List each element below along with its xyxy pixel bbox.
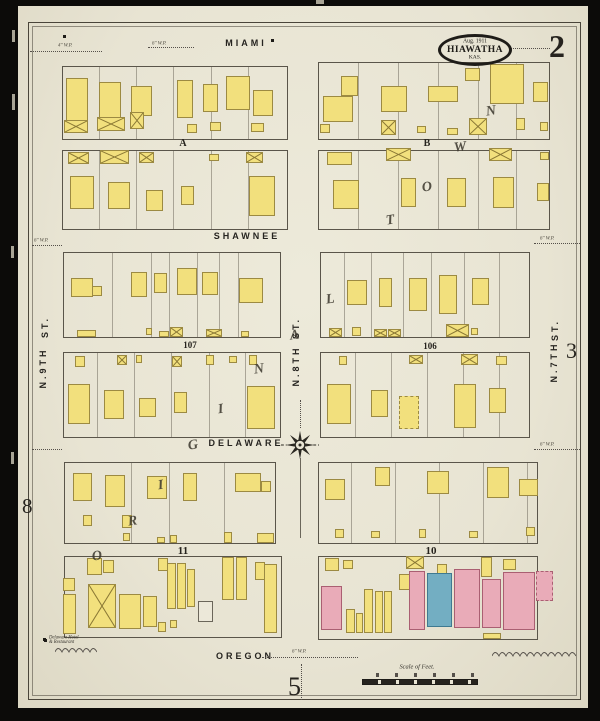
utility-dotted-line [510, 48, 550, 49]
lot-line [112, 253, 113, 337]
lot-line [499, 253, 500, 337]
sanborn-map-sheet: MIAMISHAWNEEDELAWAREOREGONST.N.9THST.N.8… [0, 0, 600, 721]
building [139, 398, 156, 417]
map-layer: MIAMISHAWNEEDELAWAREOREGONST.N.9THST.N.8… [0, 0, 600, 721]
building [157, 537, 165, 543]
hydrant-dot [271, 39, 274, 42]
building [533, 82, 548, 102]
building [540, 122, 548, 131]
building [490, 64, 524, 104]
building [210, 122, 221, 131]
outbuilding [329, 328, 342, 337]
building [143, 596, 157, 627]
building [261, 481, 271, 492]
outbuilding [406, 556, 424, 569]
lot-line [224, 463, 225, 543]
pipe-annotation: 6" W.P. [292, 648, 306, 654]
pipe-annotation: 6" W.P. [152, 40, 166, 46]
building [170, 535, 177, 543]
block-number: B [409, 138, 445, 149]
street-label: MIAMI [186, 38, 306, 48]
building [483, 633, 501, 639]
outbuilding [246, 152, 263, 163]
outbuilding [461, 354, 478, 365]
building [481, 557, 492, 577]
building [526, 527, 535, 536]
building [108, 182, 130, 209]
building [249, 176, 275, 216]
outbuilding [97, 117, 125, 131]
sheet-number: 2 [549, 28, 565, 65]
building [251, 123, 264, 132]
building [496, 356, 507, 365]
building [401, 178, 416, 207]
building [229, 356, 237, 363]
lot-line [245, 353, 246, 437]
building [63, 594, 76, 634]
pipe-annotation: 4" W.P. [58, 42, 72, 48]
lot-line [197, 253, 198, 337]
block-number: 11 [165, 545, 201, 557]
building [320, 124, 330, 133]
building [241, 331, 249, 337]
lot-line [431, 253, 432, 337]
utility-dotted-line [30, 51, 102, 52]
building [447, 178, 466, 207]
lot-line [395, 463, 396, 543]
building [187, 569, 195, 607]
building [146, 190, 163, 211]
building [236, 557, 247, 600]
lot-line [371, 253, 372, 337]
stamp-date: Aug. 1911 [451, 39, 500, 43]
building [428, 86, 458, 102]
building [83, 515, 92, 526]
building [206, 355, 214, 365]
lot-line [438, 151, 439, 229]
building [264, 564, 277, 633]
building [472, 278, 489, 305]
building [536, 571, 553, 601]
building [325, 479, 345, 500]
lot-line [427, 353, 428, 437]
building [239, 278, 263, 303]
building [146, 328, 152, 335]
building [159, 331, 169, 337]
handwritten-note [55, 643, 97, 653]
building [352, 327, 361, 336]
building [519, 479, 538, 496]
building [327, 384, 351, 424]
outbuilding [206, 329, 222, 337]
building [417, 126, 426, 133]
building [202, 272, 218, 295]
building [119, 594, 141, 629]
lot-line [211, 151, 212, 229]
building [131, 272, 147, 297]
building [224, 532, 232, 543]
building [439, 275, 457, 314]
adjacent-sheet-bottom: 5 [288, 672, 301, 702]
lot-line [173, 151, 174, 229]
outbuilding [386, 148, 411, 161]
lot-line [403, 253, 404, 337]
building [409, 571, 425, 630]
building [399, 396, 419, 429]
building [181, 186, 194, 205]
building [454, 384, 476, 428]
building [66, 78, 88, 122]
building [92, 286, 102, 296]
plat-name-letter: O [421, 179, 433, 196]
lot-line [151, 253, 152, 337]
building [77, 330, 96, 337]
utility-dotted-line [32, 245, 62, 246]
outbuilding [88, 584, 116, 628]
building [419, 529, 426, 538]
building [381, 86, 407, 112]
building [346, 609, 355, 633]
lot-line [516, 151, 517, 229]
lot-line [478, 151, 479, 229]
building [170, 620, 177, 628]
building [63, 578, 75, 591]
building [384, 591, 392, 633]
outbuilding [64, 120, 88, 133]
plat-name-letter: W [453, 139, 468, 157]
building [371, 531, 380, 538]
utility-dotted-line [32, 449, 62, 450]
building [427, 471, 449, 494]
building [503, 572, 535, 630]
building [333, 180, 359, 209]
building [104, 390, 124, 419]
lot-line [131, 463, 132, 543]
building [339, 356, 347, 365]
building [203, 84, 218, 112]
lot-line [344, 253, 345, 337]
block-number: 10 [413, 545, 449, 557]
building [325, 558, 339, 571]
outbuilding [489, 148, 512, 161]
block-number: 107 [172, 340, 208, 350]
building [537, 183, 549, 201]
utility-dotted-line [300, 400, 301, 428]
building [343, 560, 353, 569]
building [247, 386, 275, 429]
lot-line [355, 353, 356, 437]
pipe-annotation: 6" W.P. [540, 441, 554, 447]
scale-of-feet: Scale of Feet. [352, 663, 482, 685]
building [226, 76, 250, 110]
building [493, 177, 514, 208]
building [503, 559, 516, 570]
building [347, 280, 367, 305]
building [136, 355, 142, 363]
lot-line [391, 353, 392, 437]
outbuilding [172, 356, 182, 367]
lot-line [136, 151, 137, 229]
building [177, 268, 197, 295]
building [167, 563, 176, 609]
pipe-annotation: 6" W.P. [34, 237, 48, 243]
building [469, 531, 478, 538]
building [471, 328, 478, 335]
building [482, 579, 501, 628]
plat-name-letter: G [187, 437, 199, 454]
building [465, 68, 480, 81]
plat-name-letter: L [325, 291, 336, 308]
building [323, 96, 353, 122]
outbuilding [409, 355, 423, 364]
building [427, 573, 452, 627]
pipe-annotation: 6" W.P. [540, 235, 554, 241]
outbuilding [130, 112, 144, 129]
adjacent-sheet-right: 3 [566, 338, 577, 364]
building [99, 82, 121, 120]
building [222, 557, 234, 600]
building [183, 473, 197, 501]
utility-dotted-line [301, 664, 302, 700]
plat-name-letter: O [91, 548, 103, 565]
building [71, 278, 93, 297]
date-city-stamp: Aug. 1911 HIAWATHA KAS. [438, 34, 512, 66]
lot-line [134, 353, 135, 437]
building [356, 613, 363, 633]
building [375, 591, 383, 633]
building [321, 586, 342, 630]
building [454, 569, 480, 628]
lot-line [351, 463, 352, 543]
utility-dotted-line [262, 657, 358, 658]
building [174, 392, 187, 413]
hotel-note-line2: & Restaurant [49, 640, 79, 645]
outbuilding [374, 329, 387, 337]
utility-dotted-line [534, 243, 580, 244]
note-marker-dot [44, 639, 47, 642]
building [335, 529, 344, 538]
hotel-note: Delaware Hotel & Restaurant [49, 635, 79, 644]
outbuilding [170, 327, 183, 337]
outbuilding [68, 152, 89, 164]
outbuilding [381, 120, 396, 135]
building [177, 80, 193, 118]
street-label: OREGON [185, 651, 305, 661]
street-label: N.7TH [549, 302, 559, 422]
building [379, 278, 392, 307]
street-center-line [300, 458, 301, 538]
building [103, 560, 114, 573]
building [364, 589, 373, 633]
building [235, 473, 261, 492]
outbuilding [100, 150, 129, 164]
building [489, 388, 506, 413]
outbuilding [388, 329, 401, 337]
plat-name-letter: N [485, 103, 497, 120]
building [198, 601, 213, 622]
building [154, 273, 167, 293]
outbuilding [139, 152, 154, 163]
building [75, 356, 85, 367]
stamp-state: KAS. [451, 55, 499, 59]
street-label: N.9TH [38, 308, 48, 428]
block-number: A [165, 138, 201, 149]
lot-line [483, 463, 484, 543]
plat-name-letter: N [253, 361, 265, 378]
outbuilding [446, 324, 469, 337]
building [447, 128, 458, 135]
adjacent-sheet-left: 8 [22, 494, 33, 519]
outbuilding [469, 118, 487, 135]
building [516, 118, 525, 130]
lot-line [169, 253, 170, 337]
plat-name-letter: T [385, 212, 396, 229]
lot-line [97, 353, 98, 437]
lot-line [398, 151, 399, 229]
building [105, 475, 125, 507]
building [177, 563, 186, 609]
building [209, 154, 219, 161]
building [375, 467, 390, 486]
building [327, 152, 352, 165]
handwritten-note [492, 647, 576, 657]
street-label: SHAWNEE [187, 231, 307, 241]
building [257, 533, 274, 543]
utility-dotted-line [534, 449, 580, 450]
lot-line [209, 353, 210, 437]
building [540, 152, 549, 160]
building [123, 533, 130, 541]
building [409, 278, 427, 311]
lot-line [219, 253, 220, 337]
lot-line [169, 463, 170, 543]
building [341, 76, 358, 96]
lot-line [173, 67, 174, 139]
building [371, 390, 388, 417]
block-number: 106 [412, 341, 448, 351]
building [253, 90, 273, 116]
outbuilding [117, 355, 127, 365]
hydrant-dot [63, 35, 66, 38]
scale-label: Scale of Feet. [365, 663, 469, 670]
building [187, 124, 197, 133]
building [70, 176, 94, 209]
building [73, 473, 92, 501]
scale-ticks [360, 673, 478, 677]
building [158, 622, 166, 632]
lot-line [358, 63, 359, 139]
building [68, 384, 90, 424]
building [487, 467, 509, 498]
scale-bar [362, 679, 478, 685]
utility-dotted-line [148, 47, 194, 48]
